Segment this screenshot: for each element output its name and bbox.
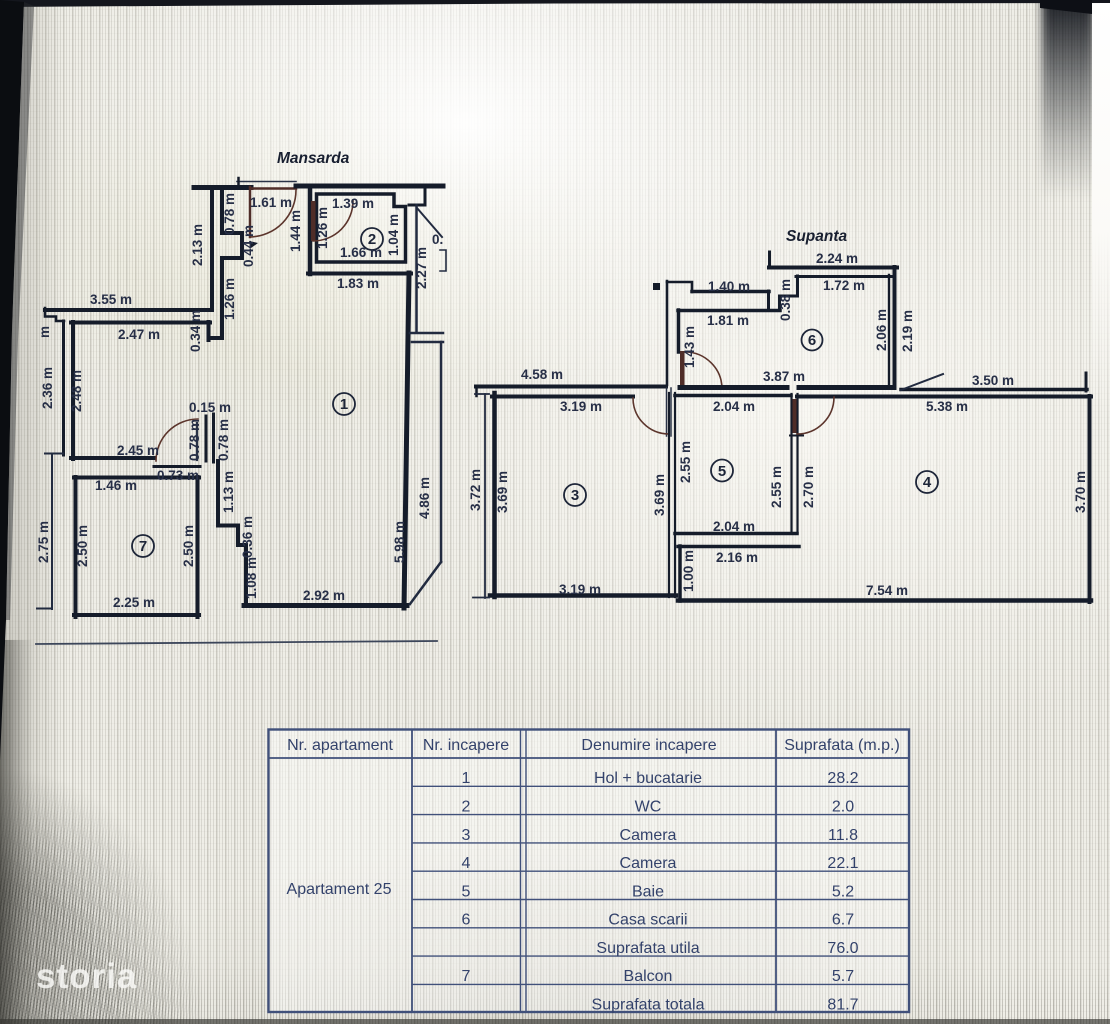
svg-text:1.44 m: 1.44 m: [288, 210, 303, 252]
svg-text:1.13 m: 1.13 m: [221, 471, 236, 513]
svg-text:1.72 m: 1.72 m: [823, 278, 865, 293]
svg-text:2.04 m: 2.04 m: [713, 399, 755, 414]
svg-text:2.16 m: 2.16 m: [716, 550, 758, 565]
svg-text:1.46 m: 1.46 m: [95, 478, 137, 493]
svg-text:1.26 m: 1.26 m: [315, 207, 330, 249]
svg-text:WC: WC: [635, 799, 662, 816]
svg-text:Mansarda: Mansarda: [277, 150, 350, 167]
svg-text:1: 1: [462, 770, 471, 787]
svg-text:3.69 m: 3.69 m: [652, 474, 667, 516]
svg-text:2.75 m: 2.75 m: [36, 521, 51, 563]
svg-text:Nr. incapere: Nr. incapere: [423, 737, 509, 754]
svg-text:Suprafata (m.p.): Suprafata (m.p.): [784, 737, 900, 754]
svg-text:1.43 m: 1.43 m: [682, 326, 697, 368]
svg-text:2.92 m: 2.92 m: [303, 588, 345, 603]
svg-text:6.7: 6.7: [832, 912, 854, 929]
svg-text:2.19 m: 2.19 m: [900, 310, 915, 352]
svg-text:4: 4: [923, 474, 932, 491]
svg-text:Balcon: Balcon: [624, 968, 673, 985]
svg-text:0.: 0.: [432, 232, 443, 247]
svg-text:2.25 m: 2.25 m: [113, 595, 155, 610]
svg-text:Hol + bucatarie: Hol + bucatarie: [594, 770, 702, 787]
svg-text:7: 7: [139, 538, 147, 555]
svg-text:0.78 m: 0.78 m: [222, 193, 237, 235]
svg-text:7.54 m: 7.54 m: [866, 583, 908, 598]
svg-text:2.13 m: 2.13 m: [190, 224, 205, 266]
svg-text:2.50 m: 2.50 m: [75, 525, 90, 567]
svg-text:2.45 m: 2.45 m: [117, 443, 159, 458]
svg-text:3.19 m: 3.19 m: [559, 582, 601, 597]
svg-text:2.47 m: 2.47 m: [118, 327, 160, 342]
svg-text:3.50 m: 3.50 m: [972, 373, 1014, 388]
svg-text:2.48 m: 2.48 m: [69, 370, 84, 412]
svg-text:0.34 m: 0.34 m: [188, 310, 203, 352]
svg-text:28.2: 28.2: [827, 770, 858, 787]
svg-text:11.8: 11.8: [828, 827, 858, 844]
svg-text:Denumire incapere: Denumire incapere: [581, 737, 716, 754]
svg-text:Supanta: Supanta: [786, 228, 848, 245]
svg-text:0.78 m: 0.78 m: [187, 419, 202, 461]
svg-text:3: 3: [462, 827, 471, 844]
svg-text:2.0: 2.0: [832, 799, 854, 816]
svg-text:1.40 m: 1.40 m: [708, 279, 750, 294]
svg-text:1.26 m: 1.26 m: [222, 278, 237, 320]
svg-text:3.69 m: 3.69 m: [495, 471, 510, 513]
svg-text:2.50 m: 2.50 m: [181, 525, 196, 567]
svg-text:Suprafata totala: Suprafata totala: [592, 997, 705, 1014]
svg-text:0.36 m: 0.36 m: [240, 516, 255, 558]
svg-text:1.39 m: 1.39 m: [332, 196, 374, 211]
svg-text:1.04 m: 1.04 m: [386, 214, 401, 256]
svg-text:0.15 m: 0.15 m: [189, 400, 231, 415]
svg-text:Apartament 25: Apartament 25: [287, 881, 392, 898]
svg-text:Suprafata utila: Suprafata utila: [596, 940, 699, 957]
svg-text:2.70 m: 2.70 m: [801, 466, 816, 508]
svg-text:5.38 m: 5.38 m: [926, 399, 968, 414]
svg-text:1.00 m: 1.00 m: [681, 550, 696, 592]
svg-text:Casa scarii: Casa scarii: [608, 912, 687, 929]
svg-text:0.38 m: 0.38 m: [778, 279, 793, 321]
svg-text:5.98 m: 5.98 m: [392, 521, 407, 563]
svg-text:Baie: Baie: [632, 884, 664, 901]
svg-text:2: 2: [462, 799, 471, 816]
svg-text:22.1: 22.1: [827, 855, 858, 872]
svg-text:Camera: Camera: [620, 827, 677, 844]
svg-text:3.19 m: 3.19 m: [560, 399, 602, 414]
svg-text:2.24 m: 2.24 m: [816, 251, 858, 266]
svg-text:2.04 m: 2.04 m: [713, 519, 755, 534]
svg-text:2.27 m: 2.27 m: [414, 247, 429, 289]
svg-text:7: 7: [462, 968, 471, 985]
svg-text:Camera: Camera: [620, 855, 677, 872]
svg-text:5.2: 5.2: [832, 884, 854, 901]
svg-text:6: 6: [808, 332, 816, 349]
svg-text:4.58 m: 4.58 m: [521, 367, 563, 382]
svg-text:3.55 m: 3.55 m: [90, 292, 132, 307]
svg-text:2.55 m: 2.55 m: [678, 441, 693, 483]
svg-text:1.83 m: 1.83 m: [337, 276, 379, 291]
svg-text:2.36 m: 2.36 m: [40, 367, 55, 409]
svg-text:5: 5: [462, 884, 471, 901]
svg-text:3: 3: [571, 487, 579, 504]
svg-text:4: 4: [462, 855, 471, 872]
svg-text:2.06 m: 2.06 m: [874, 309, 889, 351]
svg-text:4.86 m: 4.86 m: [417, 477, 432, 519]
svg-text:0.44 m: 0.44 m: [241, 225, 256, 267]
svg-text:2.55 m: 2.55 m: [769, 466, 784, 508]
svg-text:3.70 m: 3.70 m: [1073, 471, 1088, 513]
svg-text:76.0: 76.0: [827, 940, 858, 957]
svg-text:5.7: 5.7: [832, 968, 854, 985]
svg-text:5: 5: [718, 463, 726, 480]
svg-text:1.61 m: 1.61 m: [250, 195, 292, 210]
svg-text:1.81 m: 1.81 m: [707, 313, 749, 328]
svg-text:Nr. apartament: Nr. apartament: [287, 737, 393, 754]
svg-text:m: m: [37, 326, 52, 338]
svg-text:0.78 m: 0.78 m: [216, 419, 231, 461]
svg-text:1: 1: [340, 396, 348, 413]
svg-text:3.87 m: 3.87 m: [763, 369, 805, 384]
svg-text:6: 6: [462, 912, 471, 929]
svg-text:0.73 m: 0.73 m: [157, 468, 199, 483]
svg-text:81.7: 81.7: [827, 997, 858, 1014]
svg-text:1.66 m: 1.66 m: [340, 245, 382, 260]
svg-text:3.72 m: 3.72 m: [468, 469, 483, 511]
svg-text:1.08 m: 1.08 m: [244, 557, 259, 599]
